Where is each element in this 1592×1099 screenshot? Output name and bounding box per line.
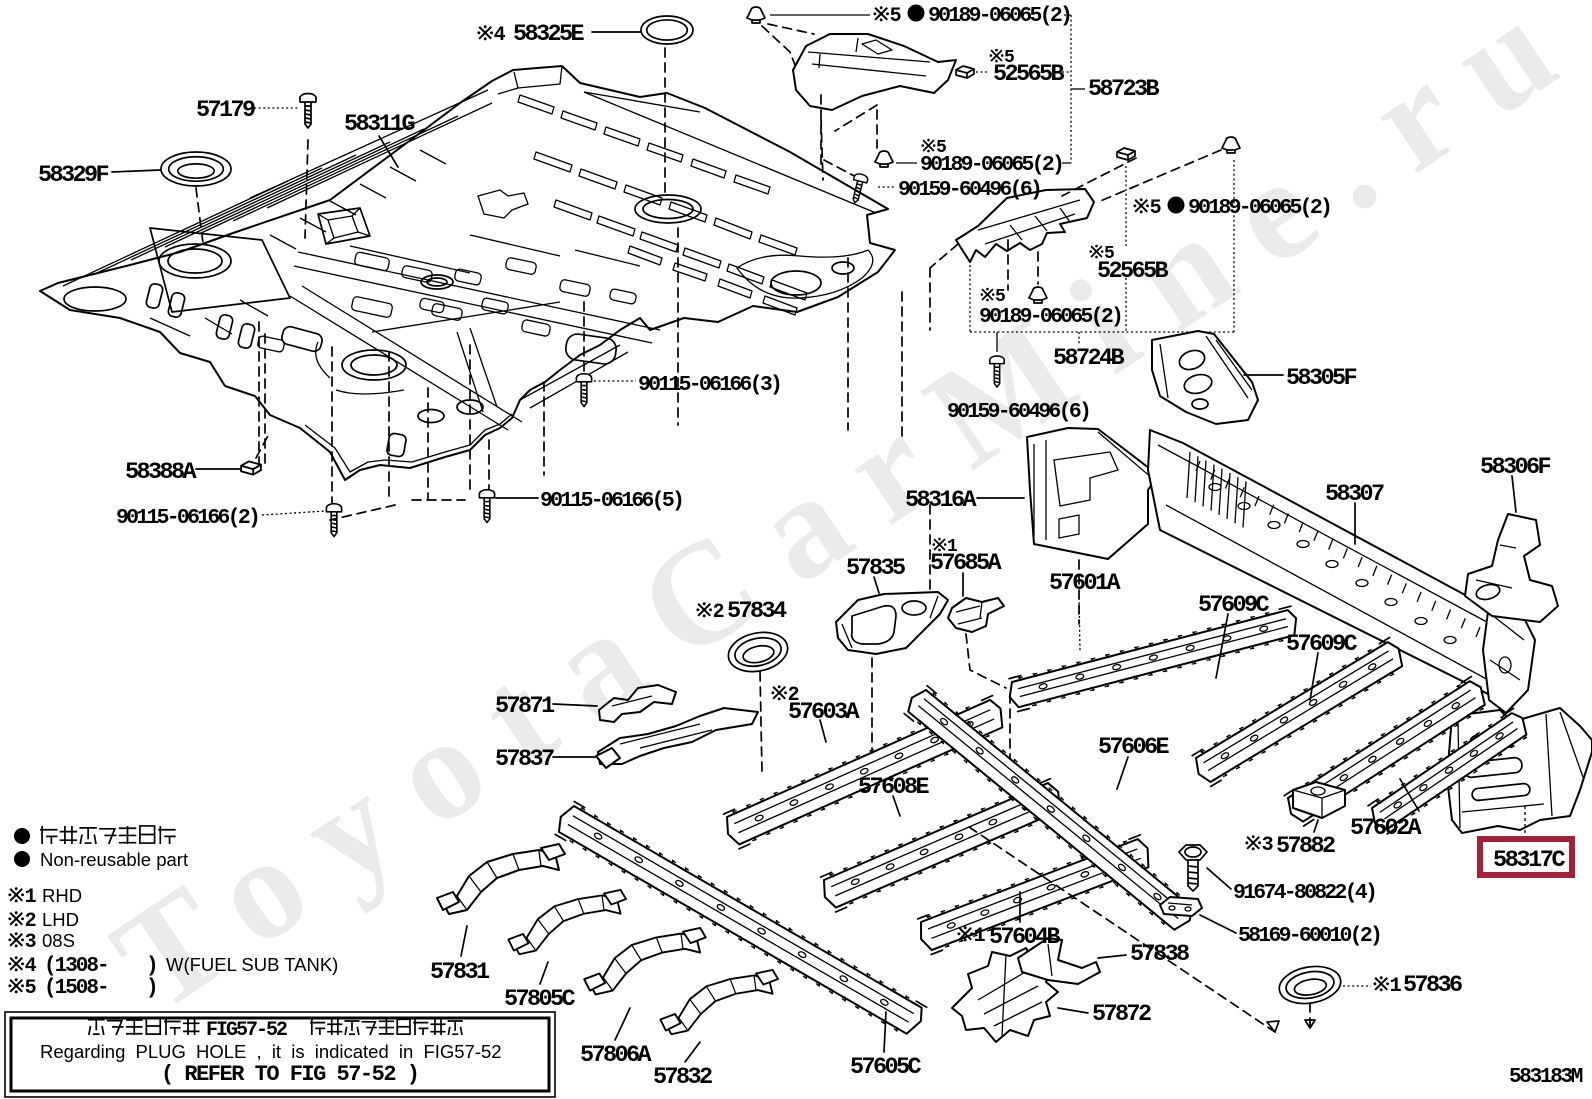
svg-text:90189-06065(2): 90189-06065(2) <box>979 305 1121 329</box>
svg-text:57608E: 57608E <box>858 774 930 801</box>
svg-text:58307: 58307 <box>1325 481 1384 508</box>
svg-text:57832: 57832 <box>653 1064 712 1091</box>
svg-text:5: 5 <box>25 977 36 1000</box>
svg-text:90159-60496(6): 90159-60496(6) <box>898 178 1040 202</box>
svg-text:W(FUEL SUB TANK): W(FUEL SUB TANK) <box>166 954 338 975</box>
svg-text:57606E: 57606E <box>1098 734 1170 761</box>
svg-text:57837: 57837 <box>495 746 554 773</box>
svg-text:57609C: 57609C <box>1286 631 1358 658</box>
svg-text:58306F: 58306F <box>1480 454 1551 481</box>
svg-text:LHD: LHD <box>42 909 79 930</box>
svg-text:58305F: 58305F <box>1286 365 1357 392</box>
svg-text:91674-80822(4): 91674-80822(4) <box>1233 881 1375 905</box>
svg-text:52565B: 52565B <box>993 61 1065 88</box>
svg-text:90115-06166(5): 90115-06166(5) <box>540 489 682 513</box>
svg-text:58316A: 58316A <box>905 487 978 514</box>
svg-text:90189-06065(2): 90189-06065(2) <box>1188 196 1330 220</box>
svg-text:08S: 08S <box>42 930 75 951</box>
svg-text:58329F: 58329F <box>38 162 109 189</box>
svg-text:): ) <box>146 977 157 1000</box>
svg-text:58169-60010(2): 58169-60010(2) <box>1238 924 1380 948</box>
svg-text:57835: 57835 <box>846 555 905 582</box>
svg-text:58317C: 58317C <box>1493 847 1566 874</box>
svg-text:3: 3 <box>25 931 36 954</box>
svg-text:): ) <box>146 955 157 978</box>
svg-text:90115-06166(2): 90115-06166(2) <box>116 506 258 530</box>
svg-text:5: 5 <box>890 5 901 28</box>
svg-text:5: 5 <box>1150 197 1161 220</box>
svg-text:57871: 57871 <box>495 693 555 720</box>
svg-text:57605C: 57605C <box>850 1054 922 1081</box>
svg-text:57805C: 57805C <box>504 986 576 1013</box>
svg-text:57603A: 57603A <box>788 699 861 726</box>
svg-text:57609C: 57609C <box>1198 592 1270 619</box>
svg-text:58724B: 58724B <box>1053 345 1125 372</box>
svg-text:57179: 57179 <box>196 97 255 124</box>
svg-text:583183M: 583183M <box>1509 1066 1583 1089</box>
svg-text:57831: 57831 <box>430 959 490 986</box>
svg-text:58388A: 58388A <box>125 459 198 486</box>
svg-text:90189-06065(2): 90189-06065(2) <box>920 153 1062 177</box>
svg-text:RHD: RHD <box>42 885 82 906</box>
svg-text:( REFER TO FIG 57-52 ): ( REFER TO FIG 57-52 ) <box>161 1062 418 1087</box>
svg-text:57685A: 57685A <box>930 550 1003 577</box>
svg-text:57604B: 57604B <box>989 924 1061 951</box>
svg-text:Regarding PLUG HOLE , it: Regarding PLUG HOLE , it is indicated in… <box>40 1041 502 1062</box>
svg-text:Non-reusable part: Non-reusable part <box>40 849 188 870</box>
svg-text:90189-06065(2): 90189-06065(2) <box>928 4 1070 28</box>
svg-text:57882: 57882 <box>1276 833 1335 860</box>
svg-text:FIG57-52: FIG57-52 <box>206 1019 287 1042</box>
svg-text:58325E: 58325E <box>513 21 585 48</box>
svg-text:58311G: 58311G <box>344 111 415 138</box>
svg-text:(1508-: (1508- <box>44 977 108 1000</box>
svg-text:52565B: 52565B <box>1097 258 1169 285</box>
svg-text:5: 5 <box>995 287 1005 307</box>
svg-text:57806A: 57806A <box>580 1042 653 1069</box>
svg-text:90159-60496(6): 90159-60496(6) <box>947 400 1089 424</box>
svg-text:2: 2 <box>713 601 724 624</box>
svg-text:57834: 57834 <box>727 598 787 625</box>
svg-text:2: 2 <box>25 910 36 933</box>
svg-text:58723B: 58723B <box>1088 76 1160 103</box>
svg-text:57836: 57836 <box>1403 972 1462 999</box>
svg-text:57601A: 57601A <box>1049 570 1122 597</box>
svg-text:57872: 57872 <box>1092 1001 1151 1028</box>
svg-text:57838: 57838 <box>1130 941 1189 968</box>
svg-text:57602A: 57602A <box>1350 815 1423 842</box>
svg-text:3: 3 <box>1262 834 1273 857</box>
svg-text:90115-06166(3): 90115-06166(3) <box>638 373 780 397</box>
svg-text:(1308-: (1308- <box>44 955 108 978</box>
